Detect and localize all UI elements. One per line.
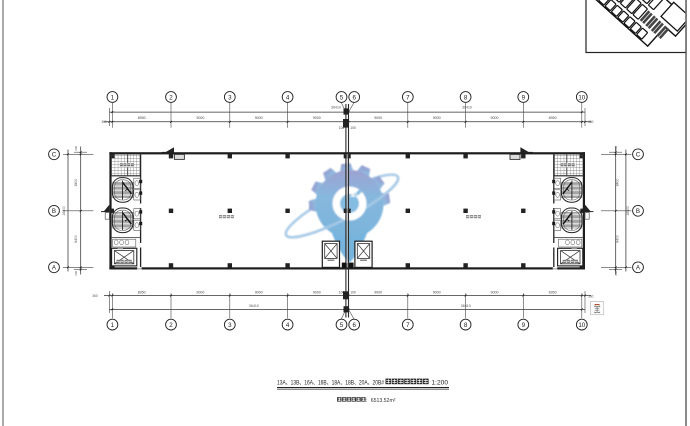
svg-text:9000: 9000 [433,291,441,295]
svg-text:B: B [636,208,640,215]
svg-text:9000: 9000 [491,116,499,120]
svg-text:36410: 36410 [331,105,341,109]
svg-text:1: 1 [111,322,115,329]
svg-text:9000: 9000 [491,291,499,295]
svg-text:C: C [636,152,641,159]
svg-text:10: 10 [578,322,585,329]
svg-text:8400: 8400 [616,179,620,187]
svg-text:8400: 8400 [74,235,78,243]
svg-text:9000: 9000 [374,291,382,295]
svg-text:36410: 36410 [249,304,259,308]
svg-text:C: C [52,152,57,159]
svg-text:2: 2 [169,94,173,101]
svg-text:4: 4 [286,322,290,329]
svg-text:36410: 36410 [462,105,472,109]
svg-text:8950: 8950 [549,291,557,295]
svg-text:9000: 9000 [255,116,263,120]
svg-text:7: 7 [406,94,410,101]
svg-text:7: 7 [406,322,410,329]
svg-text:2: 2 [169,322,173,329]
svg-text:360: 360 [614,145,618,150]
svg-text:360: 360 [74,270,78,275]
svg-text:6: 6 [352,94,356,101]
svg-text:1: 1 [111,94,115,101]
svg-text:360: 360 [614,270,618,275]
svg-text:9000: 9000 [313,291,321,295]
svg-text:8950: 8950 [138,116,146,120]
svg-text:8950: 8950 [138,291,146,295]
svg-text:9000: 9000 [374,116,382,120]
svg-text:：6513.52m²: ：6513.52m² [366,398,396,404]
svg-text:10: 10 [578,94,585,101]
svg-text:100: 100 [350,126,356,130]
svg-text:360: 360 [101,120,107,124]
svg-text:36410: 36410 [461,304,471,308]
svg-text:8: 8 [464,322,468,329]
svg-text:8: 8 [464,94,468,101]
svg-text:16800: 16800 [62,206,66,216]
svg-text:13A、13B、16A、16B、18A、18B、20A、20: 13A、13B、16A、16B、18A、18B、20A、20B# [277,380,384,387]
svg-text:360: 360 [74,145,78,150]
svg-text:360: 360 [588,295,594,299]
svg-text:9: 9 [522,94,526,101]
svg-text:8950: 8950 [549,116,557,120]
svg-text:360: 360 [588,120,594,124]
svg-text:8400: 8400 [74,179,78,187]
svg-text:9000: 9000 [196,116,204,120]
svg-text:9000: 9000 [313,116,321,120]
svg-text:16800: 16800 [626,206,630,216]
svg-text:1:200: 1:200 [432,380,449,387]
svg-text:9000: 9000 [255,291,263,295]
svg-text:5: 5 [340,322,344,329]
svg-text:360: 360 [92,294,98,298]
svg-text:4: 4 [286,94,290,101]
svg-text:8400: 8400 [616,235,620,243]
svg-text:9000: 9000 [433,116,441,120]
svg-text:6: 6 [352,322,356,329]
svg-text:B: B [52,208,56,215]
svg-text:9: 9 [522,322,526,329]
svg-text:5: 5 [340,94,344,101]
svg-text:3: 3 [228,322,232,329]
svg-text:3: 3 [228,94,232,101]
svg-text:9000: 9000 [196,291,204,295]
svg-text:100: 100 [350,291,356,295]
